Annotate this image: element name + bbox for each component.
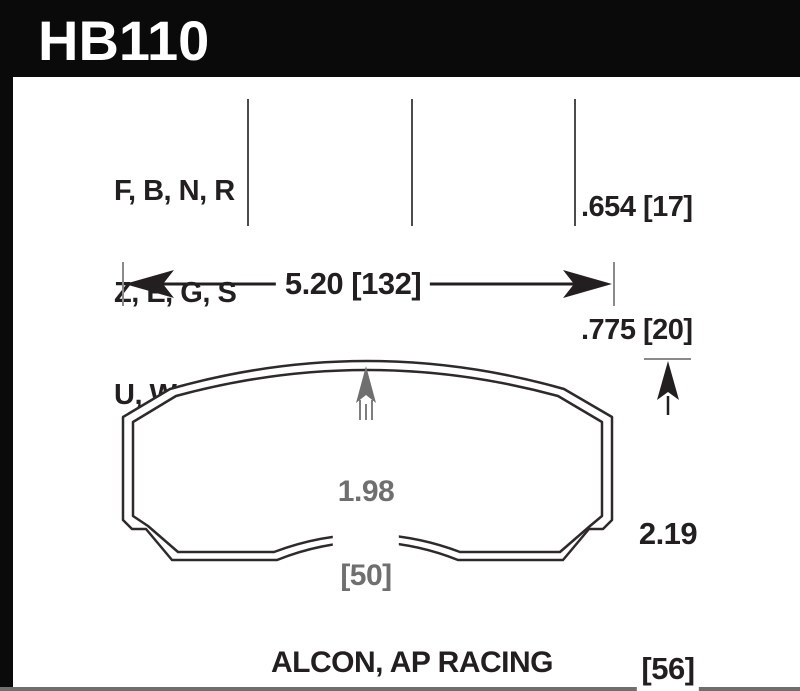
up-arrowhead-icon	[657, 361, 679, 400]
width-dimension-label: 5.20 [132]	[276, 266, 430, 302]
center-height-millimeters: [50]	[338, 562, 394, 590]
brake-pad-spec-sheet: HB110 F, B, N, R Z, E, G, S U, W .654 [1…	[0, 0, 800, 691]
table-divider-lines	[248, 99, 575, 226]
height-dimension-label: 2.19 [56]	[637, 421, 699, 691]
center-height-dimension-label: 1.98 [50]	[333, 421, 399, 647]
center-height-inches: 1.98	[338, 478, 394, 506]
overall-height-inches: 2.19	[639, 511, 697, 556]
overall-height-millimeters: [56]	[639, 646, 697, 691]
applications-label: ALCON, AP RACING	[271, 646, 553, 680]
